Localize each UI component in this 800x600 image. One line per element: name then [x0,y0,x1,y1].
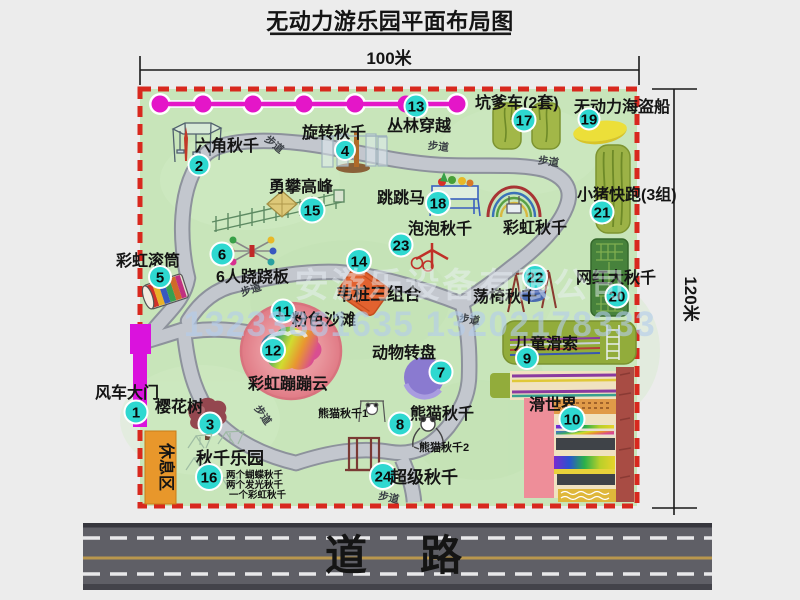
svg-text:六角秋千: 六角秋千 [195,136,259,155]
svg-text:10: 10 [564,412,581,429]
svg-text:彩虹秋千: 彩虹秋千 [502,218,567,237]
svg-text:13: 13 [408,99,425,116]
svg-text:小猪快跑(3组): 小猪快跑(3组) [577,185,677,204]
svg-text:1: 1 [132,405,140,422]
svg-text:21: 21 [594,205,611,222]
svg-text:3: 3 [206,417,214,434]
svg-text:19: 19 [581,112,598,129]
svg-text:休息区: 休息区 [157,442,176,491]
svg-text:超级秋千: 超级秋千 [390,467,458,487]
svg-text:熊猫秋千2: 熊猫秋千2 [419,440,469,454]
svg-text:熊猫秋千: 熊猫秋千 [410,404,474,423]
svg-text:无动力游乐园平面布局图: 无动力游乐园平面布局图 [266,9,514,34]
svg-text:6人跷跷板: 6人跷跷板 [216,267,290,286]
svg-text:100米: 100米 [366,48,412,68]
svg-text:6: 6 [218,247,226,264]
svg-text:8: 8 [396,417,404,434]
svg-text:步道: 步道 [427,139,450,154]
svg-text:泡泡秋千: 泡泡秋千 [408,219,472,238]
svg-text:风车大门: 风车大门 [95,383,159,402]
svg-text:彩虹滚筒: 彩虹滚筒 [115,251,180,270]
svg-text:跳跳马: 跳跳马 [377,188,425,207]
svg-text:道: 道 [325,532,367,579]
svg-text:4: 4 [341,143,350,160]
svg-text:23: 23 [393,238,410,255]
svg-text:12: 12 [265,343,282,360]
svg-text:2: 2 [195,158,203,175]
svg-text:15: 15 [304,203,321,220]
svg-text:一个彩虹秋千: 一个彩虹秋千 [229,489,287,501]
svg-text:勇攀高峰: 勇攀高峰 [269,177,334,196]
svg-text:坑爹车(2套): 坑爹车(2套) [475,93,559,112]
svg-text:9: 9 [523,351,531,368]
svg-text:17: 17 [516,113,533,130]
svg-text:路: 路 [420,532,463,579]
svg-text:120米: 120米 [681,276,701,322]
svg-text:旋转秋千: 旋转秋千 [301,123,366,142]
svg-text:13233861635 13202178333: 13233861635 13202178333 [184,305,656,344]
svg-text:动物转盘: 动物转盘 [372,343,436,362]
svg-text:5: 5 [156,270,164,287]
svg-text:樱花树: 樱花树 [155,397,203,416]
svg-text:丛林穿越: 丛林穿越 [387,116,452,135]
svg-text:16: 16 [201,470,218,487]
svg-text:安游乐设备有限公司: 安游乐设备有限公司 [295,267,628,305]
svg-text:18: 18 [430,196,447,213]
svg-text:彩虹蹦蹦云: 彩虹蹦蹦云 [247,374,328,393]
svg-text:7: 7 [437,365,445,382]
svg-text:熊猫秋千1: 熊猫秋千1 [318,406,368,420]
